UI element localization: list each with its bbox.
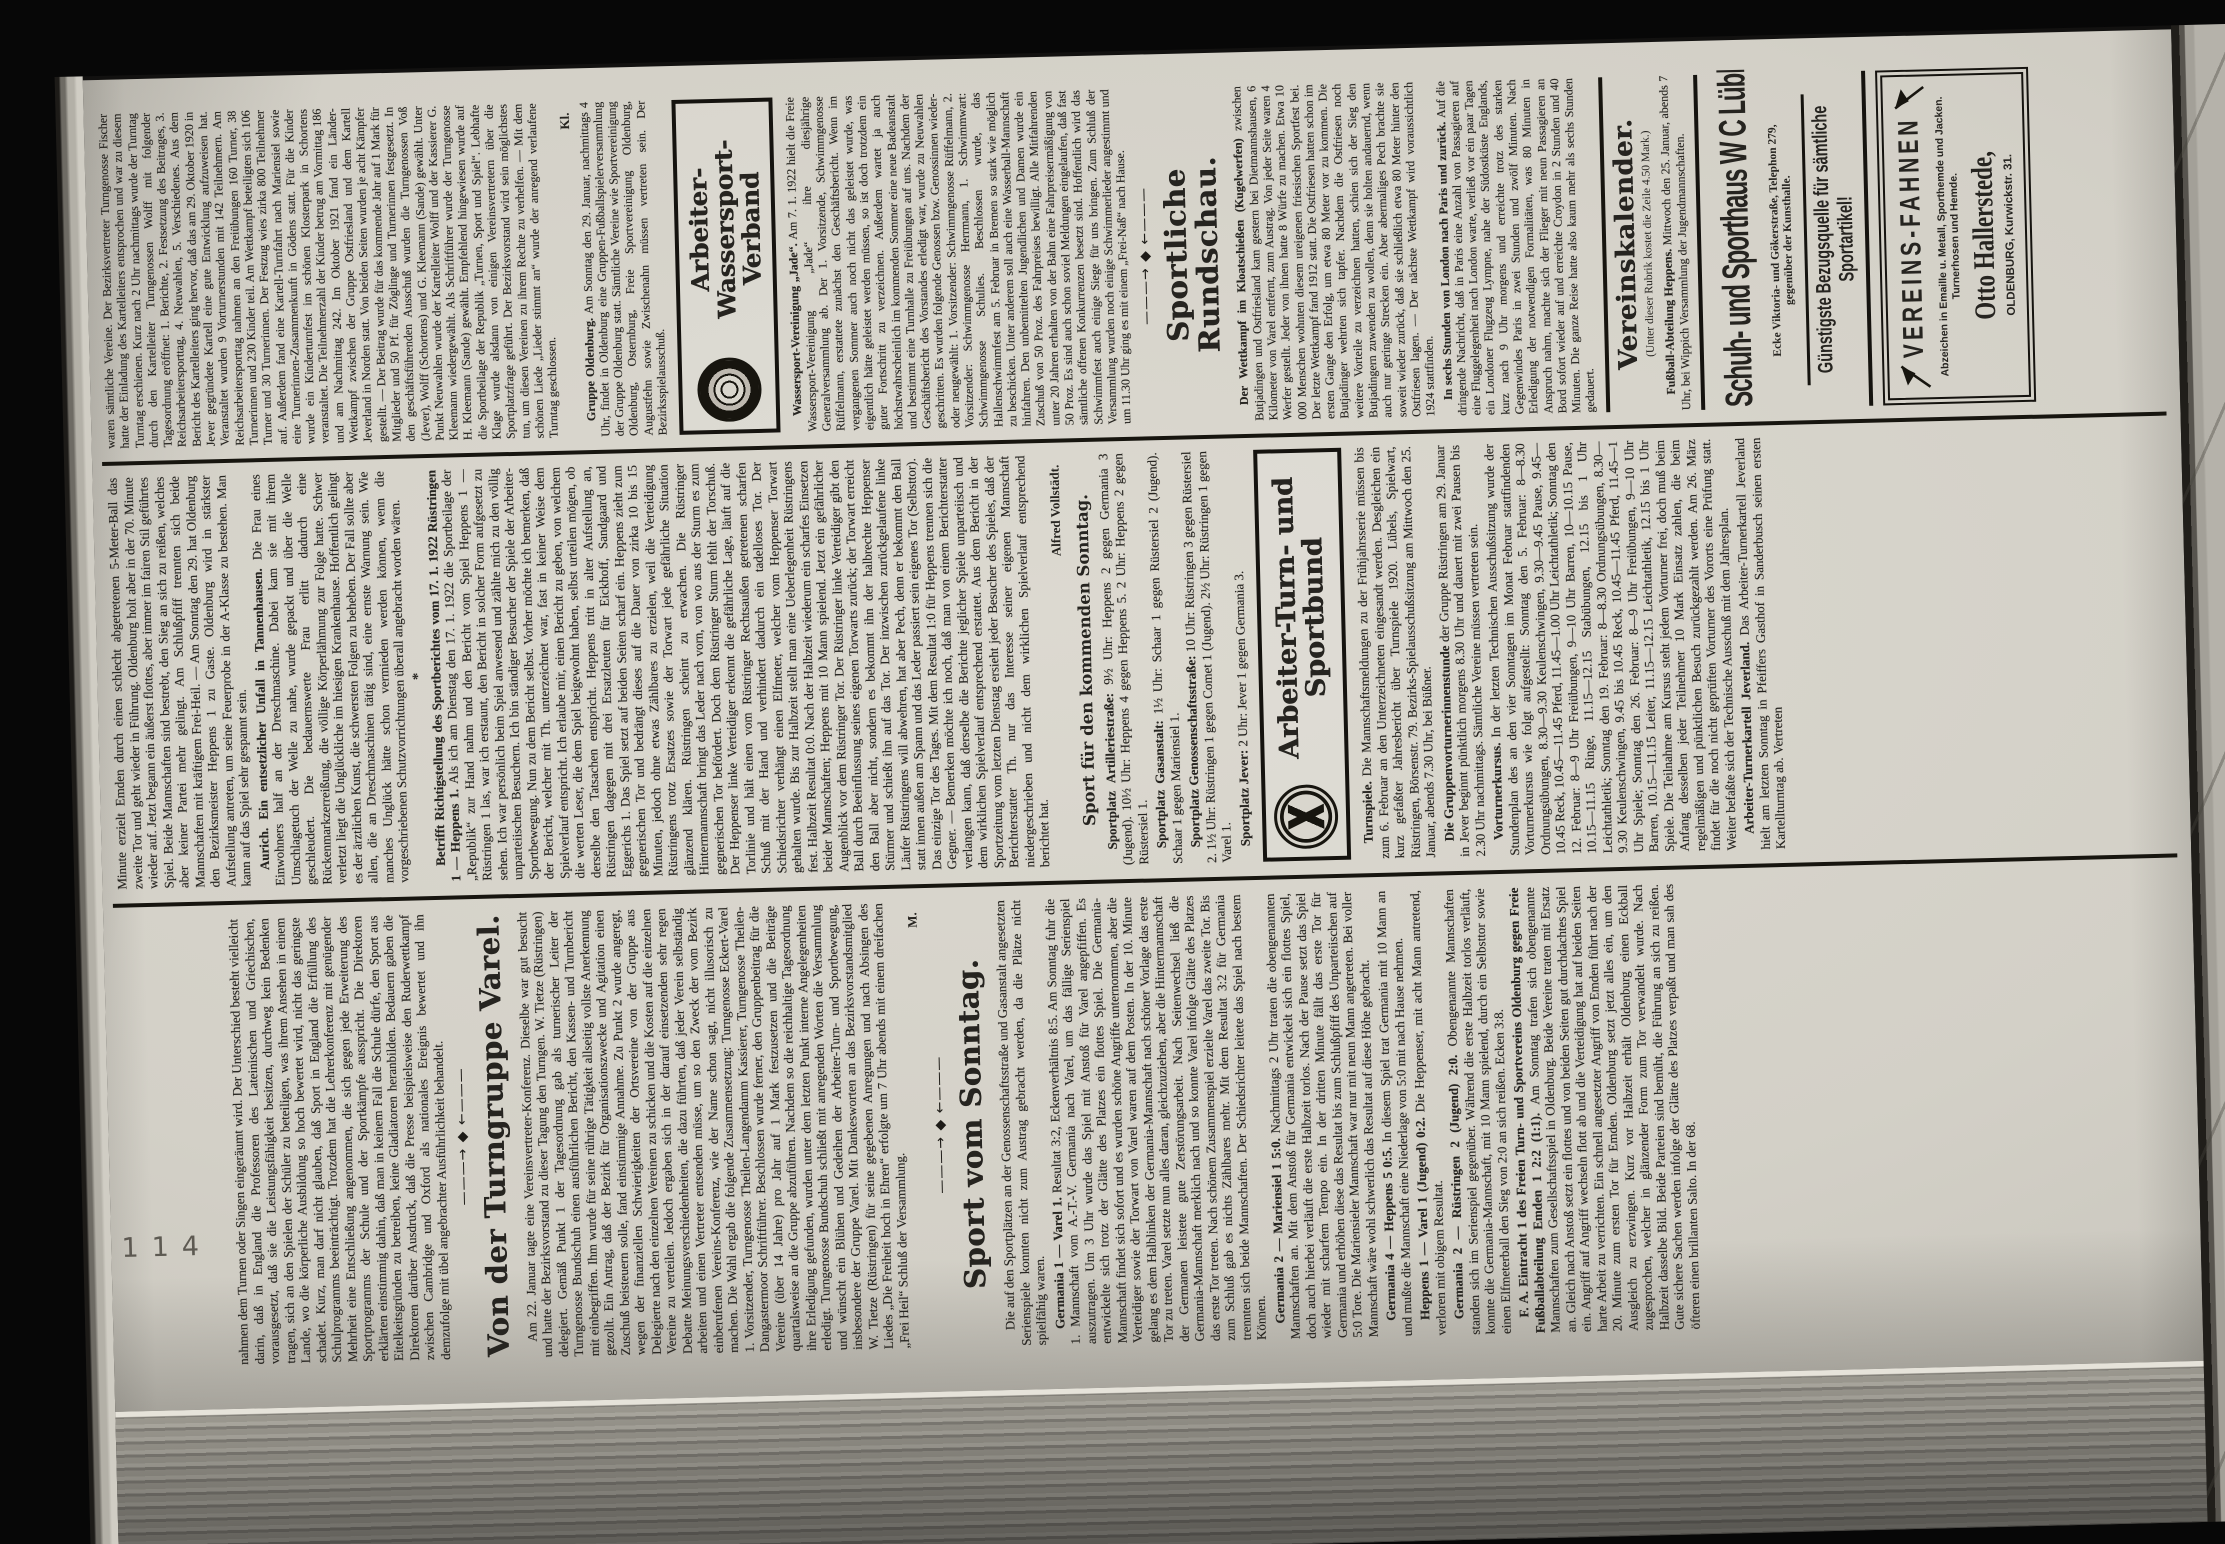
article-paragraph: Am 22. Januar tagte eine Vereinsvertrete… — [514, 903, 912, 1358]
article-paragraph: Vorturnerkursus. In der letzten Technisc… — [1481, 438, 1739, 856]
paragraph-lead: Arbeiter-Turnerkartell Jeverland. — [1737, 635, 1757, 834]
ad-schuh-und-sporthaus-luebben: Schuh- und Sporthaus W C LübbenEcke Vikt… — [1693, 71, 1873, 410]
columns: nahmen dem Turnen oder Singen eingeräumt… — [83, 29, 2204, 1412]
ad-title: Schuh- und Sporthaus W C Lübben — [1711, 75, 1764, 407]
article-paragraph: Der Wettkampf im Kloatschießen (Kugelwer… — [1230, 81, 1438, 421]
boxed-headline-title: Arbeiter-Turn- und Sportbund — [1269, 460, 1333, 775]
ad-vereins-fahnen-hallerstede: VEREINS-FAHNENAbzeichen in Emaille u. Me… — [1875, 67, 2036, 406]
article-paragraph: Betrifft Richtigstellung des Sportberich… — [423, 455, 1053, 882]
newspaper-column-1: nahmen dem Turnen oder Singen eingeräumt… — [113, 857, 2189, 1367]
article-paragraph: Arbeiter-Turnerkartell Jeverland. Das Ar… — [1732, 437, 1789, 850]
paragraph-lead: Heppens 1 — Varel 1 (Jugend) 0:2. — [1413, 1112, 1433, 1320]
paragraph-lead: Germania 4 — Heppens 5 0:5. — [1379, 1142, 1398, 1321]
ad-title: VEREINS-FAHNEN — [1893, 116, 1931, 358]
newspaper-column-2: Minute erzielt Emden durch einen schlech… — [102, 416, 2177, 908]
pennant-flag-icon — [1891, 84, 1926, 111]
pennant-flag-icon — [1898, 364, 1933, 391]
paragraph-lead: Gruppe Oldenburg. — [581, 314, 598, 421]
newspaper-page: 114 nahmen dem Turnen oder Singen einger… — [83, 29, 2204, 1412]
ad-proprietor-name: Otto Hallerstede, — [1963, 80, 2004, 392]
ad-product-list: Abzeichen in Emaille u. Metall, Sporthem… — [1932, 81, 1966, 393]
paragraph-lead: Wassersport-Vereinigung „Jade“. — [786, 240, 804, 417]
boxed-headline-title: Arbeiter-Wassersport-Verband — [684, 110, 767, 349]
paragraph-lead: Germania 1 — Varel 1. — [1049, 1193, 1067, 1329]
article-paragraph: Aurich. Ein entsetzlicher Unfall in Tann… — [247, 471, 412, 887]
article-headline: Von der Turngruppe Varel. — [473, 912, 516, 1359]
paragraph-lead: Vorturnerkursus. — [1488, 737, 1505, 840]
article-paragraph: Die Gruppenvorturnerinnenstunde der Grup… — [1432, 444, 1489, 857]
paragraph-lead: Germania 2 — Mariensiel 1 5:0. — [1268, 1133, 1288, 1323]
turn-und-sportbund-header-box: Arbeiter-Turn- und Sportbund — [1253, 448, 1351, 862]
article-paragraph: In sechs Stunden von London nach Paris u… — [1433, 78, 1598, 417]
article-paragraph: Die auf den Sportplätzen an der Genossen… — [992, 899, 1049, 1346]
paragraph-lead: Germania 2 — Rüstringen 2 (Jugend) 2:0. — [1445, 1046, 1467, 1319]
article-paragraph: Gruppe Oldenburg. Am Sonntag den 29. Jan… — [576, 100, 670, 437]
newspaper-column-3: waren sämtliche Vereine. Der Bezirksvert… — [93, 60, 2166, 466]
article-paragraph: Germania 1 — Varel 1. Resultat 3:2, Ecke… — [1042, 894, 1270, 1345]
article-paragraph: Turnspiele. Die Mannschaftsmeldungen zu … — [1351, 446, 1439, 860]
article-paragraph: Wassersport-Vereinigung „Jade“. Am 7. 1.… — [783, 89, 1134, 432]
paragraph-lead: Sportplatz Genossenschaftsstraße: — [1183, 652, 1203, 848]
article-continuation-paragraph: nahmen dem Turnen oder Singen eingeräumt… — [225, 914, 453, 1365]
bound-volume: 114 nahmen dem Turnen oder Singen einger… — [55, 24, 2225, 1544]
folio-number-stamp: 114 — [121, 1231, 212, 1264]
article-paragraph: Germania 2 — Mariensiel 1 5:0. Nachmitta… — [1262, 891, 1381, 1340]
article-paragraph: Germania 2 — Rüstringen 2 (Jugend) 2:0. … — [1441, 888, 1514, 1335]
ad-slogan: Günstigste Bezugsquelle für sämtliche Sp… — [1808, 73, 1862, 405]
paragraph-lead: Der Wettkampf im Kloatschießen (Kugelwer… — [1231, 131, 1252, 406]
wassersport-verband-seal-icon — [697, 357, 763, 423]
scanned-newspaper-screenshot: 114 nahmen dem Turnen oder Singen einger… — [0, 0, 2225, 1544]
wassersport-verband-header-box: Arbeiter-Wassersport-Verband — [672, 98, 781, 435]
sportbund-monogram-seal-icon — [1273, 784, 1339, 850]
paragraph-lead: Sportplatz Jever: — [1235, 746, 1252, 846]
ad-title-row: VEREINS-FAHNEN — [1891, 81, 1933, 393]
rotated-page-content: 114 nahmen dem Turnen oder Singen einger… — [83, 29, 2204, 1412]
article-headline: Sportliche Rundschau. — [1157, 87, 1229, 423]
section-separator-ornament: ———→ ◆ ←——— — [1133, 88, 1157, 423]
paragraph-lead: Fußball-Abteilung Heppens. — [1661, 245, 1679, 395]
paragraph-lead: Sportplatz Gasanstalt: — [1151, 714, 1169, 848]
paragraph-lead: Turnspiele. — [1359, 776, 1376, 843]
article-paragraph: Sportplatz Artilleriestraße: 9½ Uhr: Hep… — [1095, 453, 1152, 866]
article-paragraph: Sportplatz Genossenschaftsstraße: 10 Uhr… — [1178, 451, 1235, 864]
paragraph-lead: Die Gruppenvorturnerinnenstunde — [1436, 642, 1456, 842]
paragraph-lead: In sechs Stunden von London nach Paris u… — [1434, 118, 1455, 400]
article-continuation-paragraph: waren sämtliche Vereine. Der Bezirksvert… — [96, 103, 562, 449]
article-paragraph: Fußball-Abteilung Heppens. Mittwoch den … — [1656, 75, 1693, 411]
paragraph-lead: Sportplatz Artilleriestraße: — [1100, 685, 1119, 850]
article-paragraph: F. A. Eintracht 1 des Freien Turn- und S… — [1506, 883, 1703, 1333]
article-headline: Sport vom Sonntag. — [951, 901, 994, 1348]
article-continuation-paragraph: Minute erzielt Emden durch einen schlech… — [104, 475, 254, 890]
